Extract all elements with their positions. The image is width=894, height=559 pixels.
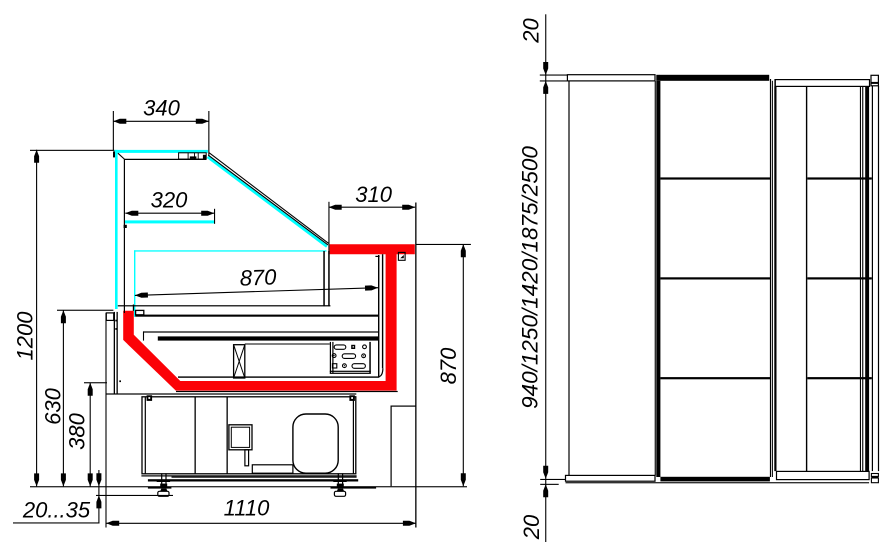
svg-text:20: 20 <box>519 18 544 44</box>
svg-text:310: 310 <box>355 182 392 207</box>
svg-text:870: 870 <box>436 347 461 384</box>
svg-text:20: 20 <box>519 514 544 540</box>
svg-text:380: 380 <box>65 412 90 449</box>
svg-text:340: 340 <box>143 96 180 121</box>
svg-text:1200: 1200 <box>13 311 38 361</box>
svg-text:630: 630 <box>41 387 66 424</box>
svg-text:870: 870 <box>239 264 277 290</box>
svg-text:940/1250/1420/1875/2500: 940/1250/1420/1875/2500 <box>517 146 542 409</box>
svg-text:1110: 1110 <box>224 496 270 521</box>
svg-text:20...35: 20...35 <box>22 498 91 523</box>
svg-text:320: 320 <box>151 187 188 212</box>
